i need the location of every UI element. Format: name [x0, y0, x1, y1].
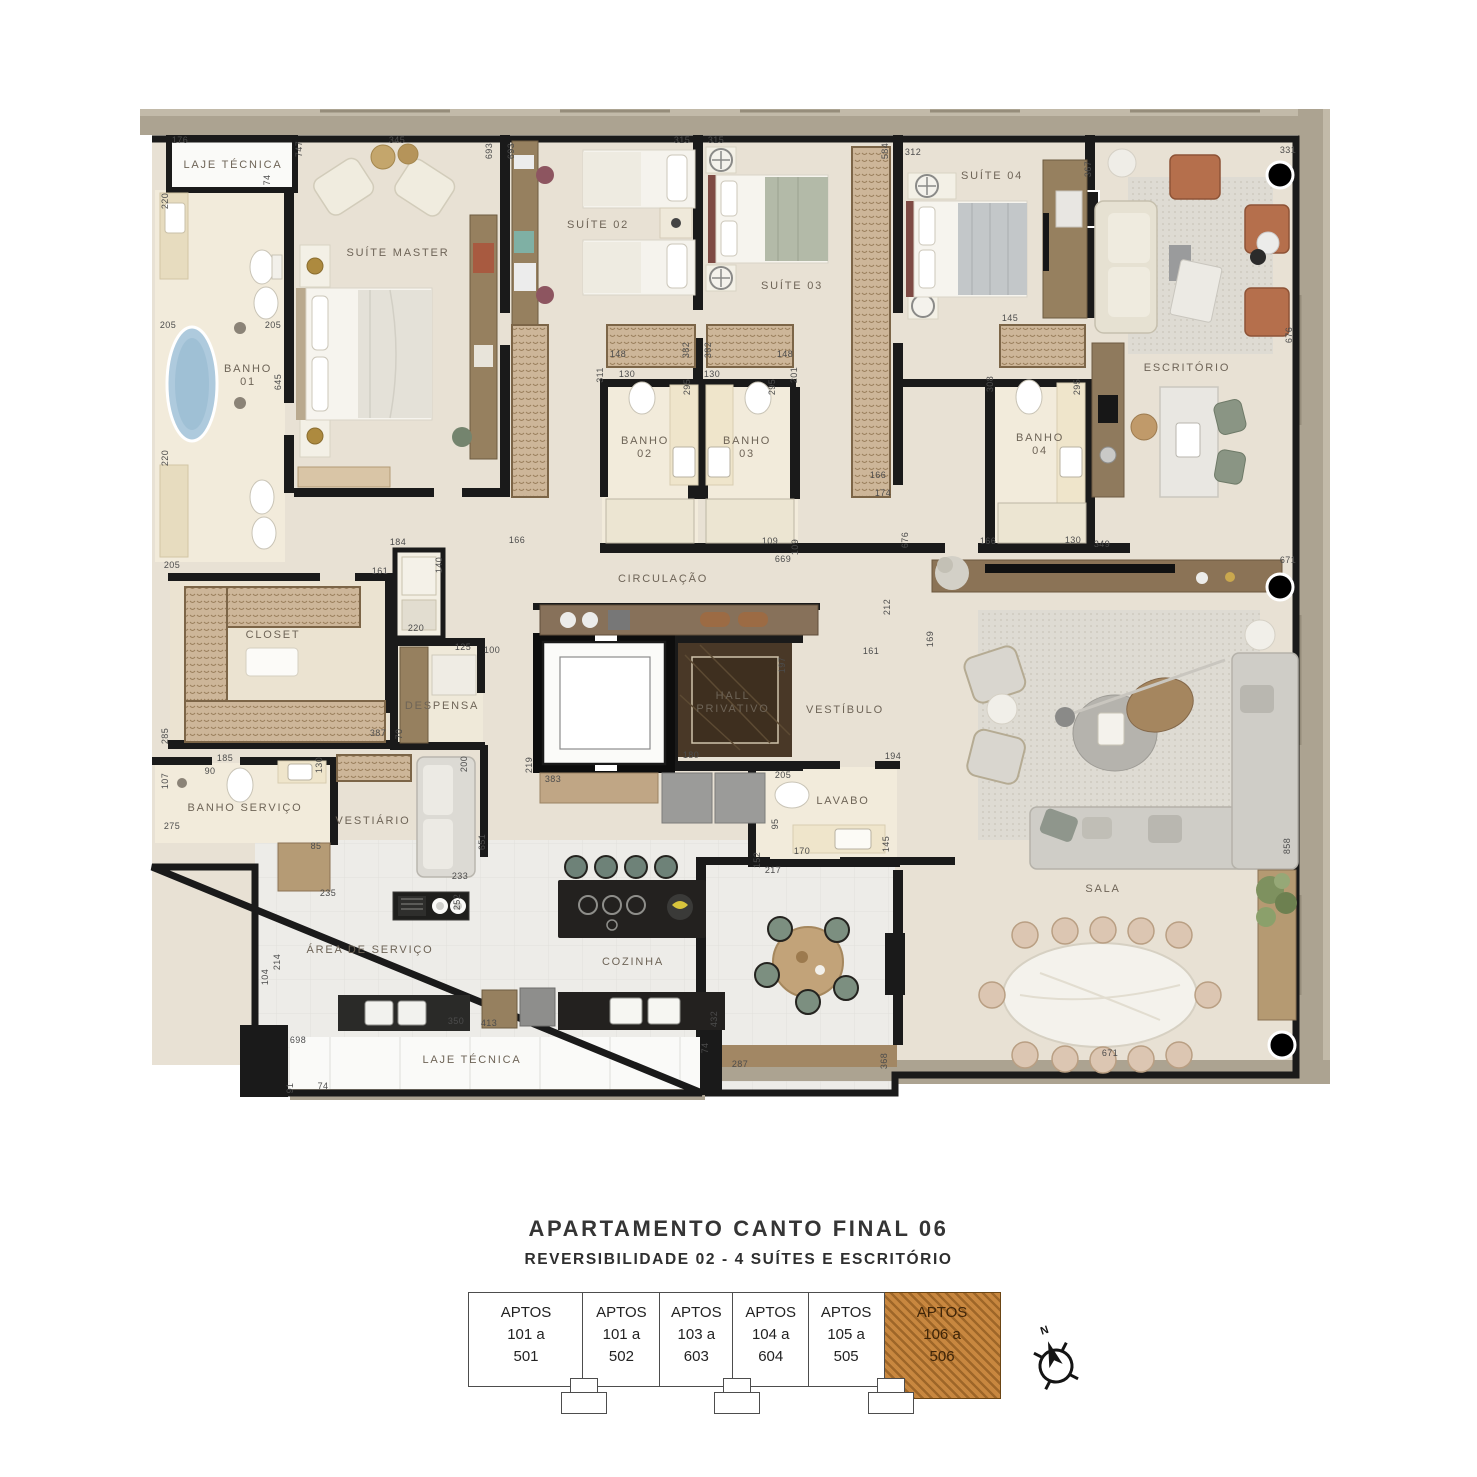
- room-label: COZINHA: [602, 956, 664, 968]
- dim-label: 197: [777, 657, 787, 673]
- floorplan: LAJE TÉCNICABANHO01SUÍTE MASTERSUÍTE 02S…: [140, 95, 1330, 1105]
- dim-label: 200: [459, 756, 469, 772]
- dim-label: 201: [789, 367, 799, 383]
- keyplan-core-icon: [714, 1378, 760, 1414]
- keyplan-unit-label: 103 a: [660, 1324, 733, 1346]
- keyplan-unit-label: 506: [884, 1346, 1000, 1368]
- dim-label: 311: [595, 367, 605, 383]
- dim-label: 220: [408, 623, 424, 633]
- dim-label: 295: [682, 379, 692, 395]
- dim-label: 308: [985, 376, 995, 392]
- dim-label: 315: [674, 135, 690, 145]
- dim-label: 107: [160, 773, 170, 789]
- dim-label: 205: [265, 320, 281, 330]
- keyplan-unit-label: APTOS: [660, 1302, 733, 1324]
- dim-label: 368: [879, 1053, 889, 1069]
- dim-label: 432: [709, 1011, 719, 1027]
- dim-label: 676: [900, 532, 910, 548]
- svg-text:N: N: [1039, 1324, 1050, 1338]
- keyplan-unit-label: 101 a: [583, 1324, 659, 1346]
- dim-label: 285: [160, 728, 170, 744]
- dim-label: 205: [164, 560, 180, 570]
- dim-label: 70: [394, 729, 404, 740]
- dim-label: 312: [905, 147, 921, 157]
- dim-label: 219: [524, 757, 534, 773]
- room-label: VESTIÁRIO: [336, 814, 411, 827]
- dim-label: 95: [770, 819, 780, 830]
- page-subtitle: REVERSIBILIDADE 02 - 4 SUÍTES E ESCRITÓR…: [0, 1251, 1477, 1269]
- keyplan-unit-label: 104 a: [733, 1324, 808, 1346]
- dim-label: 130: [619, 369, 635, 379]
- keyplan-core-icon: [561, 1378, 607, 1414]
- dim-label: 212: [882, 599, 892, 615]
- dim-label: 74: [262, 175, 272, 186]
- dim-label: 315: [708, 135, 724, 145]
- room-label: SUÍTE 03: [761, 279, 823, 292]
- dim-label: 176: [172, 135, 188, 145]
- dim-label: 161: [863, 646, 879, 656]
- dim-label: 387: [370, 728, 386, 738]
- dim-label: 252: [452, 894, 462, 910]
- room-label: BANHO SERVIÇO: [188, 802, 303, 814]
- dim-label: 331: [1280, 145, 1296, 155]
- dim-label: 235: [320, 888, 336, 898]
- dim-label: 148: [777, 349, 793, 359]
- dim-label: 125: [455, 642, 471, 652]
- dim-label: 217: [765, 865, 781, 875]
- keyplan-unit: APTOS103 a603: [659, 1292, 734, 1387]
- keyplan-unit: APTOS101 a502: [582, 1292, 660, 1387]
- room-label: LAJE TÉCNICA: [183, 158, 282, 171]
- dim-label: 669: [775, 554, 791, 564]
- dim-label: 74: [318, 1081, 329, 1091]
- dim-label: 152: [752, 852, 762, 868]
- dim-label: 350: [448, 1016, 464, 1026]
- dim-label: 693: [506, 143, 516, 159]
- dim-label: 161: [372, 566, 388, 576]
- dim-label: 109: [762, 536, 778, 546]
- room-label: CIRCULAÇÃO: [618, 572, 708, 585]
- keyplan-core-icon: [868, 1378, 914, 1414]
- dim-label: 349: [1094, 539, 1110, 549]
- dim-label: 367: [1083, 161, 1093, 177]
- dim-label: 184: [390, 537, 406, 547]
- keyplan-unit: APTOS101 a501: [468, 1292, 584, 1387]
- elevator: [533, 633, 675, 773]
- dim-label: 169: [925, 631, 935, 647]
- dim-label: 145: [881, 836, 891, 852]
- dim-label: 295: [1072, 379, 1082, 395]
- dim-label: 275: [164, 821, 180, 831]
- dim-label: 130: [1065, 535, 1081, 545]
- dim-label: 90: [205, 766, 216, 776]
- dim-label: 651: [477, 834, 487, 850]
- keyplan: APTOS101 a501APTOS101 a502APTOS103 a603A…: [468, 1292, 1001, 1412]
- dim-label: 194: [885, 751, 901, 761]
- dim-label: 85: [311, 841, 322, 851]
- dim-label: 383: [545, 774, 561, 784]
- room-label: ESCRITÓRIO: [1144, 361, 1230, 374]
- dim-label: 220: [160, 450, 170, 466]
- keyplan-unit-label: 505: [809, 1346, 884, 1368]
- room-label: VESTÍBULO: [806, 703, 884, 716]
- dim-label: 676: [1284, 327, 1294, 343]
- dim-label: 205: [160, 320, 176, 330]
- page-title: APARTAMENTO CANTO FINAL 06: [0, 1216, 1477, 1242]
- dim-label: 382: [703, 342, 713, 358]
- dim-label: 295: [767, 379, 777, 395]
- dim-label: 233: [452, 871, 468, 881]
- room-label: DESPENSA: [405, 700, 479, 712]
- dim-label: 287: [732, 1059, 748, 1069]
- dim-label: 693: [484, 143, 494, 159]
- keyplan-unit: APTOS104 a604: [732, 1292, 809, 1387]
- dim-label: 645: [273, 374, 283, 390]
- dim-label: 185: [217, 753, 233, 763]
- dim-label: 858: [1282, 838, 1292, 854]
- floorplan-page: LAJE TÉCNICABANHO01SUÍTE MASTERSUÍTE 02S…: [0, 0, 1477, 1477]
- dim-label: 100: [484, 645, 500, 655]
- dim-label: 74: [700, 1043, 710, 1054]
- room-label: LAJE TÉCNICA: [422, 1053, 521, 1066]
- keyplan-unit-label: APTOS: [733, 1302, 808, 1324]
- dim-label: 166: [980, 536, 996, 546]
- dim-label: 220: [160, 193, 170, 209]
- dim-label: 671: [1280, 555, 1296, 565]
- dim-label: 382: [681, 342, 691, 358]
- keyplan-unit-label: APTOS: [884, 1302, 1000, 1324]
- dim-label: 671: [1102, 1048, 1118, 1058]
- room-label: ÁREA DE SERVIÇO: [306, 943, 433, 956]
- room-label: SUÍTE 02: [567, 218, 629, 231]
- keyplan-unit-label: 106 a: [884, 1324, 1000, 1346]
- keyplan-unit-label: APTOS: [469, 1302, 583, 1324]
- dim-label: 130: [704, 369, 720, 379]
- dim-label: 345: [389, 135, 405, 145]
- room-label: SUÍTE MASTER: [347, 246, 450, 259]
- room-label: LAVABO: [816, 795, 869, 807]
- keyplan-unit-label: APTOS: [583, 1302, 659, 1324]
- dim-label: 413: [481, 1018, 497, 1028]
- keyplan-unit-label: 105 a: [809, 1324, 884, 1346]
- keyplan-unit-label: 501: [469, 1346, 583, 1368]
- dim-label: 747: [294, 141, 304, 157]
- keyplan-unit-label: APTOS: [809, 1302, 884, 1324]
- dim-label: 214: [272, 954, 282, 970]
- dim-label: 145: [1002, 313, 1018, 323]
- dim-label: 104: [260, 969, 270, 985]
- keyplan-unit: APTOS105 a505: [808, 1292, 885, 1387]
- dim-label: 180: [683, 750, 699, 760]
- dim-label: 148: [610, 349, 626, 359]
- dim-label: 130: [314, 757, 324, 773]
- dim-label: 91: [285, 1083, 295, 1094]
- keyplan-unit-label: 101 a: [469, 1324, 583, 1346]
- keyplan-unit-label: 603: [660, 1346, 733, 1368]
- title-block: APARTAMENTO CANTO FINAL 06 REVERSIBILIDA…: [0, 1216, 1477, 1269]
- room-label: SUÍTE 04: [961, 169, 1023, 182]
- dim-label: 584: [880, 143, 890, 159]
- keyplan-unit-label: 502: [583, 1346, 659, 1368]
- dim-label: 170: [794, 846, 810, 856]
- dim-label: 166: [870, 470, 886, 480]
- room-label: SALA: [1085, 883, 1120, 895]
- dim-label: 205: [775, 770, 791, 780]
- dim-label: 166: [509, 535, 525, 545]
- keyplan-unit-label: 604: [733, 1346, 808, 1368]
- dim-label: 174: [875, 488, 891, 498]
- room-label: CLOSET: [246, 629, 301, 641]
- dim-label: 698: [290, 1035, 306, 1045]
- compass-icon: N: [1018, 1318, 1094, 1402]
- dim-label: 140: [434, 557, 444, 573]
- dim-label: 109: [790, 539, 800, 555]
